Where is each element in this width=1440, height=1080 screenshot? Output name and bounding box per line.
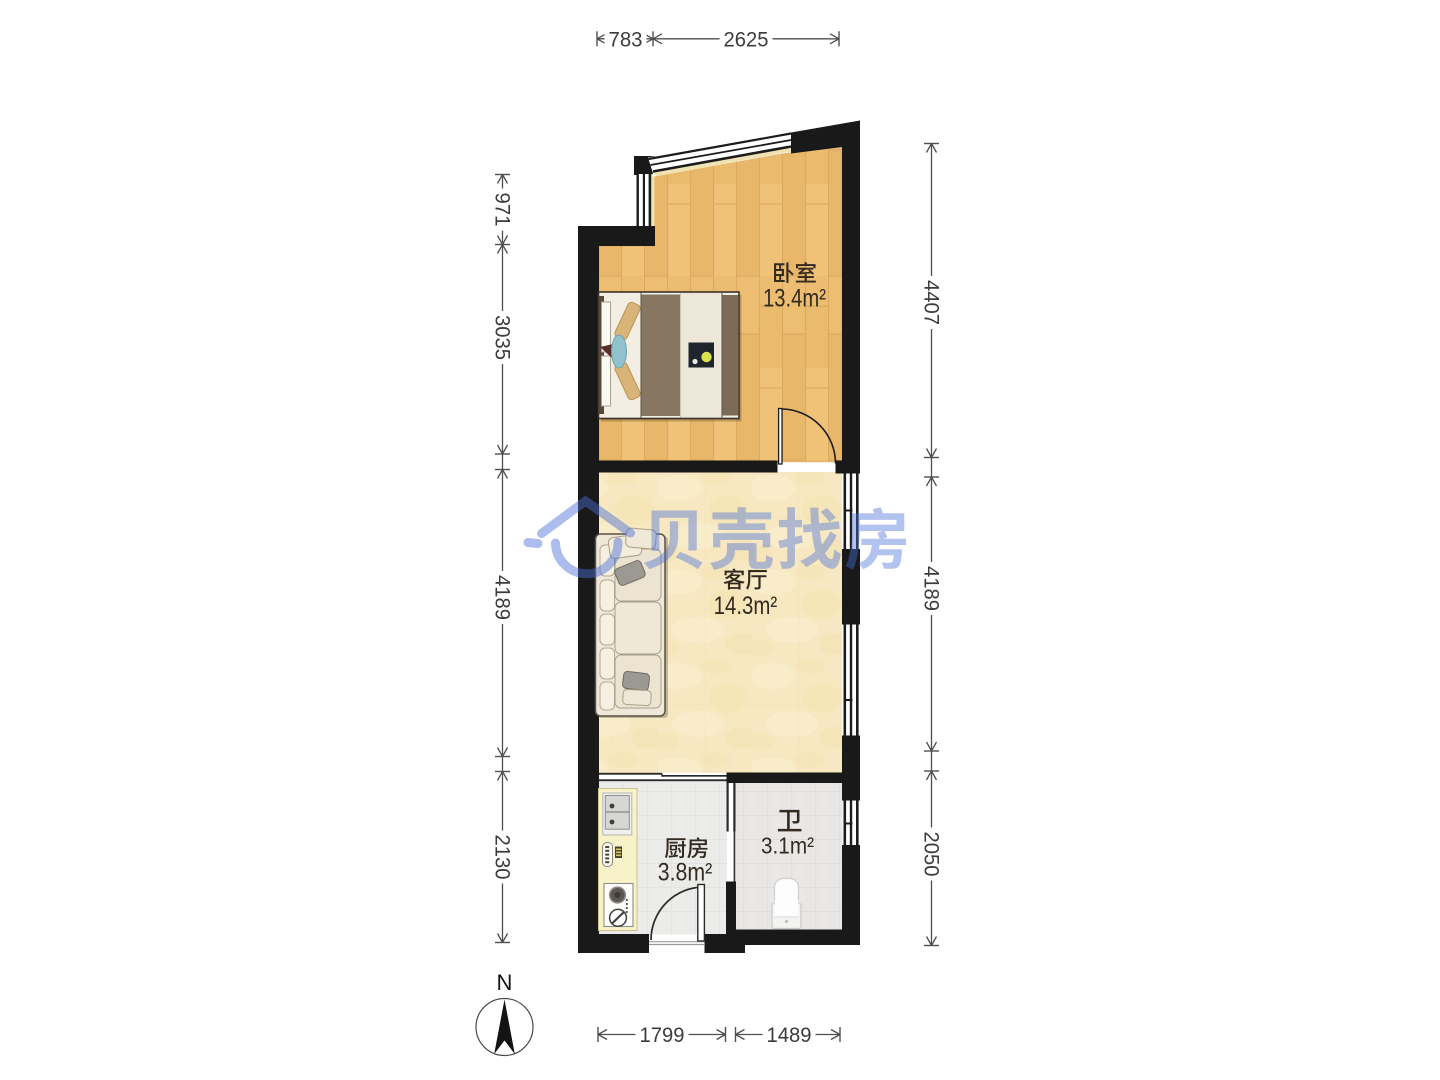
svg-text:3.1m²: 3.1m² <box>761 832 814 858</box>
svg-text:14.3m²: 14.3m² <box>714 592 778 620</box>
svg-text:2625: 2625 <box>724 27 769 51</box>
svg-text:13.4m²: 13.4m² <box>763 284 826 312</box>
svg-text:2050: 2050 <box>920 832 944 877</box>
svg-text:971: 971 <box>491 193 515 227</box>
svg-text:1799: 1799 <box>640 1023 685 1047</box>
svg-text:4407: 4407 <box>920 280 944 325</box>
svg-text:2130: 2130 <box>491 835 515 880</box>
svg-text:1489: 1489 <box>767 1023 812 1047</box>
svg-text:3035: 3035 <box>491 315 515 360</box>
svg-text:N: N <box>497 970 513 995</box>
svg-text:4189: 4189 <box>920 566 944 611</box>
svg-text:3.8m²: 3.8m² <box>658 858 713 886</box>
svg-text:783: 783 <box>609 27 643 51</box>
svg-text:4189: 4189 <box>491 575 515 620</box>
